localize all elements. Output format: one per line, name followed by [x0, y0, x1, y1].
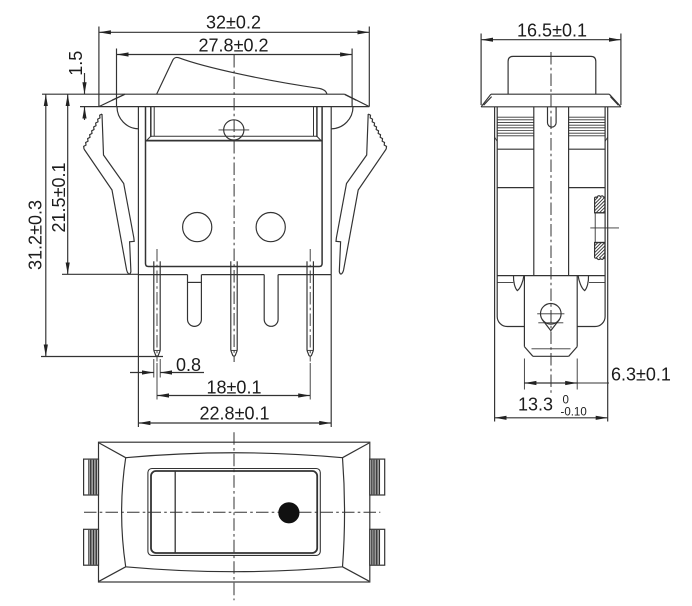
svg-text:-0.10: -0.10 [561, 406, 587, 418]
svg-text:0: 0 [563, 395, 569, 407]
svg-text:21.5±0.1: 21.5±0.1 [49, 163, 69, 233]
svg-text:1.5: 1.5 [66, 51, 86, 76]
svg-text:32±0.2: 32±0.2 [206, 12, 261, 32]
svg-text:13.3: 13.3 [518, 395, 553, 415]
svg-text:6.3±0.1: 6.3±0.1 [611, 364, 671, 384]
svg-text:22.8±0.1: 22.8±0.1 [200, 403, 270, 423]
svg-text:0.8: 0.8 [176, 355, 201, 375]
svg-text:31.2±0.3: 31.2±0.3 [26, 200, 46, 270]
svg-text:18±0.1: 18±0.1 [207, 378, 262, 398]
svg-text:16.5±0.1: 16.5±0.1 [517, 21, 587, 41]
svg-text:27.8±0.2: 27.8±0.2 [199, 36, 269, 56]
